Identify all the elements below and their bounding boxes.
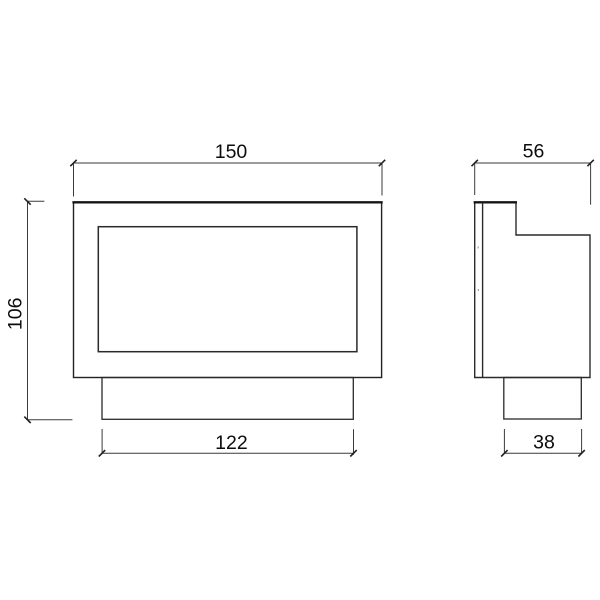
svg-text:150: 150 (215, 141, 248, 163)
svg-text:106: 106 (5, 298, 27, 331)
svg-text:38: 38 (533, 432, 555, 454)
svg-text:56: 56 (523, 141, 545, 163)
svg-text:122: 122 (215, 432, 248, 454)
